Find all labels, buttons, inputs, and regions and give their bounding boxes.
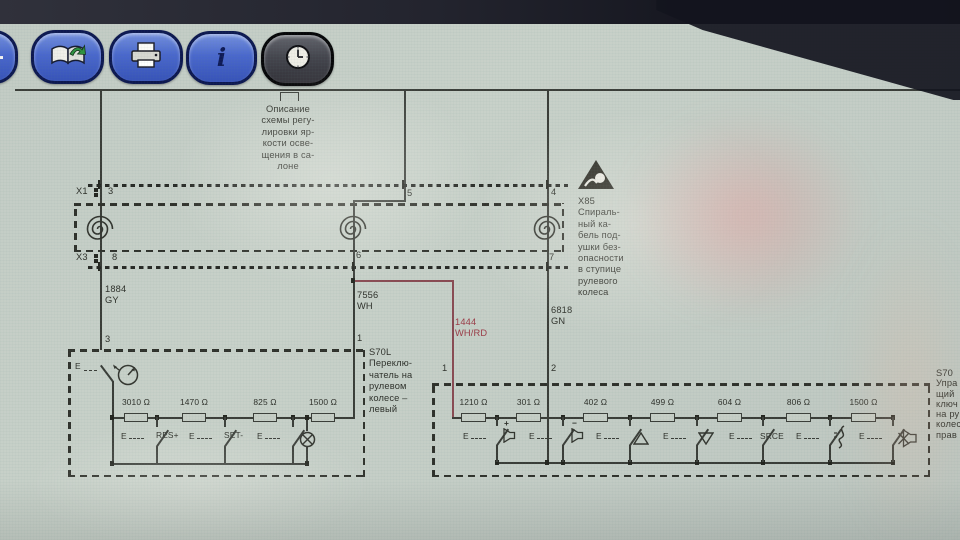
- resistor-value-label: 301 Ω: [507, 397, 551, 407]
- switch-e-dash: [265, 438, 280, 439]
- diagram-note: Описание схемы регу- лировки яр- кости о…: [236, 104, 340, 172]
- switch-e-dash: [737, 438, 752, 439]
- s70l-line: левый: [369, 404, 412, 415]
- connector-x3-dotted-line: [88, 266, 568, 269]
- pin-tick: [546, 262, 549, 271]
- s70l-label-block: S70L Переклю- чатель на рулевом колесе –…: [369, 347, 412, 415]
- lamp-stub-top: [306, 418, 308, 431]
- s70l-line: рулевом: [369, 381, 412, 392]
- wire-label-1884-gy[interactable]: 1884 GY: [105, 284, 126, 307]
- s70l-pin-3-label: 3: [105, 334, 110, 345]
- switch-e-dash: [804, 438, 819, 439]
- junction-dot: [305, 461, 310, 466]
- s70l-box-bottom: [68, 475, 365, 478]
- switch-e-label: E: [257, 431, 263, 441]
- wire-label-7556-wh[interactable]: 7556 WH: [357, 290, 378, 313]
- printer-icon: [128, 41, 164, 74]
- wire-label-1444-whrd-highlighted[interactable]: 1444 WH/RD: [455, 317, 487, 340]
- s70r-box-top: [432, 383, 930, 386]
- s70-right-label-block: S70 Упра щий ключ на ру колес прав: [936, 368, 960, 440]
- connector-glyph: [94, 259, 98, 263]
- volume-down-speaker: [569, 428, 584, 448]
- resistor-value-label: 1500 Ω: [301, 397, 345, 407]
- switch-e-dash: [604, 438, 619, 439]
- entry-switch-e-label: E: [75, 361, 81, 371]
- s70r-pin-2-label: 2: [551, 363, 556, 374]
- note-line: лировки яр-: [236, 127, 340, 138]
- switch-e-dash: [197, 438, 212, 439]
- partial-icon: [0, 56, 3, 59]
- switch-stub-bottom: [829, 445, 831, 462]
- s70l-box-top: [68, 349, 365, 352]
- voice-squiggle: [833, 424, 851, 455]
- switch-stub-bottom: [224, 446, 226, 463]
- pin-tick: [402, 180, 405, 189]
- x85-box-top: [74, 203, 564, 206]
- switch-stub-top: [829, 417, 831, 426]
- entry-switch-dash: [84, 370, 97, 371]
- s70-line: прав: [936, 430, 960, 440]
- wire-label-6818-gn[interactable]: 6818 GN: [551, 305, 572, 328]
- info-icon: i: [217, 43, 227, 72]
- s70l-id: S70L: [369, 347, 412, 358]
- junction-dot: [545, 460, 550, 465]
- wire-1444-branch: [353, 280, 453, 282]
- switch-e-dash: [129, 438, 144, 439]
- tis-application-screen: Описание схемы регу- лировки яр- кости о…: [0, 0, 960, 540]
- s70-line: щий: [936, 389, 960, 399]
- s70-line: Упра: [936, 378, 960, 388]
- switch-stub-top: [762, 417, 764, 426]
- x85-box-bottom: [74, 250, 564, 253]
- wire-pin5-jog: [353, 200, 406, 202]
- junction-dot: [110, 415, 115, 420]
- connector-x1-dotted-line: [88, 184, 568, 187]
- s70r-box-right: [928, 383, 931, 477]
- resistor: [786, 413, 811, 422]
- print-button[interactable]: [109, 30, 183, 84]
- resistor: [717, 413, 742, 422]
- s70l-line: чатель на: [369, 370, 412, 381]
- switch-e-dash: [537, 438, 552, 439]
- x85-line: ушки без-: [578, 242, 624, 253]
- resistor: [583, 413, 608, 422]
- switch-e-dash: [671, 438, 686, 439]
- switch-e-label: E: [729, 431, 735, 441]
- wire-number: 1444: [455, 317, 487, 328]
- switch-stub-bottom: [496, 445, 498, 462]
- resistor-value-label: 1210 Ω: [452, 397, 496, 407]
- spiral-cable-icon: [527, 209, 567, 254]
- clock-icon: [284, 43, 312, 76]
- switch-e-label: E: [121, 431, 127, 441]
- switch-e-label: E: [859, 431, 865, 441]
- x85-line: Спираль-: [578, 207, 624, 218]
- x85-line: ный ка-: [578, 219, 624, 230]
- s70l-line: Переклю-: [369, 358, 412, 369]
- switch-stub-top: [892, 417, 894, 426]
- connector-glyph: [94, 188, 98, 192]
- volume-up-speaker: [501, 428, 516, 448]
- resistor-value-label: 1470 Ω: [172, 397, 216, 407]
- switch-stub-bottom: [562, 445, 564, 462]
- switch-stub-top: [292, 417, 294, 427]
- wire-number: 1884: [105, 284, 126, 295]
- x85-line: в ступице: [578, 264, 624, 275]
- minus-sign: −: [572, 418, 577, 428]
- seek-up-triangle: [633, 432, 649, 450]
- resistor: [182, 413, 206, 422]
- switch-stub-top: [224, 417, 226, 427]
- switch-stub-bottom: [629, 445, 631, 462]
- resistor-value-label: 499 Ω: [641, 397, 685, 407]
- toolbar: i: [0, 0, 960, 90]
- resistor: [851, 413, 876, 422]
- spiral-cable-icon: [333, 209, 373, 254]
- junction-dot: [351, 278, 356, 283]
- switch-stub-bottom: [156, 446, 158, 463]
- pin-5-label: 5: [407, 188, 412, 199]
- resistor-value-label: 1500 Ω: [842, 397, 886, 407]
- resistor: [650, 413, 675, 422]
- note-line: схемы регу-: [236, 115, 340, 126]
- switch-stub-bottom: [892, 445, 894, 462]
- s70l-common-vertical: [112, 381, 114, 463]
- x85-id: X85: [578, 196, 624, 207]
- resistor: [253, 413, 277, 422]
- junction-dot: [305, 415, 310, 420]
- x85-line: колеса: [578, 287, 624, 298]
- note-line: Описание: [236, 104, 340, 115]
- switch-stub-bottom: [762, 445, 764, 462]
- x85-line: рулевого: [578, 276, 624, 287]
- pin-4-label: 4: [551, 187, 556, 198]
- x85-label-block: X85 Спираль- ный ка- бель под- ушки без-…: [578, 196, 624, 299]
- switch-e-label: E: [663, 431, 669, 441]
- switch-e-label: E: [189, 431, 195, 441]
- pin-tick: [352, 262, 355, 271]
- connector-glyph: [94, 254, 98, 258]
- switch-e-dash: [867, 438, 882, 439]
- pin-tick: [98, 262, 101, 271]
- s70l-bus: [112, 463, 308, 465]
- manuals-button[interactable]: [31, 30, 104, 84]
- switch-stub-top: [156, 417, 158, 427]
- s70r-pin-1-label: 1: [442, 363, 447, 374]
- dimmer-gauge-icon: [112, 358, 142, 393]
- s70l-pin-1-label: 1: [357, 333, 362, 344]
- plus-sign: +: [504, 418, 509, 428]
- switch-e-label: E: [796, 431, 802, 441]
- wire-color: GY: [105, 295, 126, 306]
- pin-3-label: 3: [108, 186, 113, 197]
- junction-dot: [110, 461, 115, 466]
- resistor-value-label: 3010 Ω: [114, 397, 158, 407]
- switch-stub-top: [696, 417, 698, 426]
- switch-e-label: E: [596, 431, 602, 441]
- resistor: [124, 413, 148, 422]
- s70l-box-right: [363, 349, 366, 477]
- connector-x1-label: X1: [76, 186, 88, 197]
- x85-line: опасности: [578, 253, 624, 264]
- wire-number: 6818: [551, 305, 572, 316]
- s70l-line: колесе –: [369, 393, 412, 404]
- s70-line: S70: [936, 368, 960, 378]
- s70r-box-left: [432, 383, 435, 477]
- mute-speaker: [897, 429, 918, 453]
- s70l-box-left: [68, 349, 71, 477]
- resistor: [516, 413, 541, 422]
- switch-e-dash: [471, 438, 486, 439]
- switch-stub-top: [496, 417, 498, 426]
- s70-line: на ру: [936, 409, 960, 419]
- note-reference-bracket: [280, 92, 299, 101]
- resistor: [461, 413, 486, 422]
- resistor-value-label: 806 Ω: [777, 397, 821, 407]
- book-arrow-icon: [49, 42, 87, 73]
- resistor-value-label: 825 Ω: [243, 397, 287, 407]
- toolbar-button-partial[interactable]: [0, 30, 18, 84]
- s70l-pin1-vertical: [353, 349, 355, 417]
- seek-down-triangle: [698, 432, 714, 450]
- pin-tick: [546, 180, 549, 189]
- x85-box-left: [74, 203, 77, 252]
- switch-e-label: E: [529, 431, 535, 441]
- note-line: лоне: [236, 161, 340, 172]
- connector-glyph: [94, 193, 98, 197]
- s70r-box-bottom: [432, 475, 930, 478]
- airbag-warning-icon: [577, 159, 615, 195]
- wire-color: WH: [357, 301, 378, 312]
- switch-stub-top: [629, 417, 631, 426]
- resistor-value-label: 604 Ω: [708, 397, 752, 407]
- s70-line: ключ: [936, 399, 960, 409]
- resistor: [311, 413, 335, 422]
- x85-line: бель под-: [578, 230, 624, 241]
- wire-number: 7556: [357, 290, 378, 301]
- note-line: щения в са-: [236, 150, 340, 161]
- switch-stub-bottom: [292, 446, 294, 463]
- switch-e-label: E: [463, 431, 469, 441]
- pin-tick: [98, 180, 101, 189]
- wire-color: GN: [551, 316, 572, 327]
- note-line: кости осве-: [236, 138, 340, 149]
- spiral-cable-icon: [80, 209, 120, 254]
- info-button[interactable]: i: [186, 31, 257, 85]
- switch-stub-top: [562, 417, 564, 426]
- s70-line: колес: [936, 419, 960, 429]
- wire-color: WH/RD: [455, 328, 487, 339]
- resistor-value-label: 402 Ω: [574, 397, 618, 407]
- history-button-pressed[interactable]: [261, 32, 334, 86]
